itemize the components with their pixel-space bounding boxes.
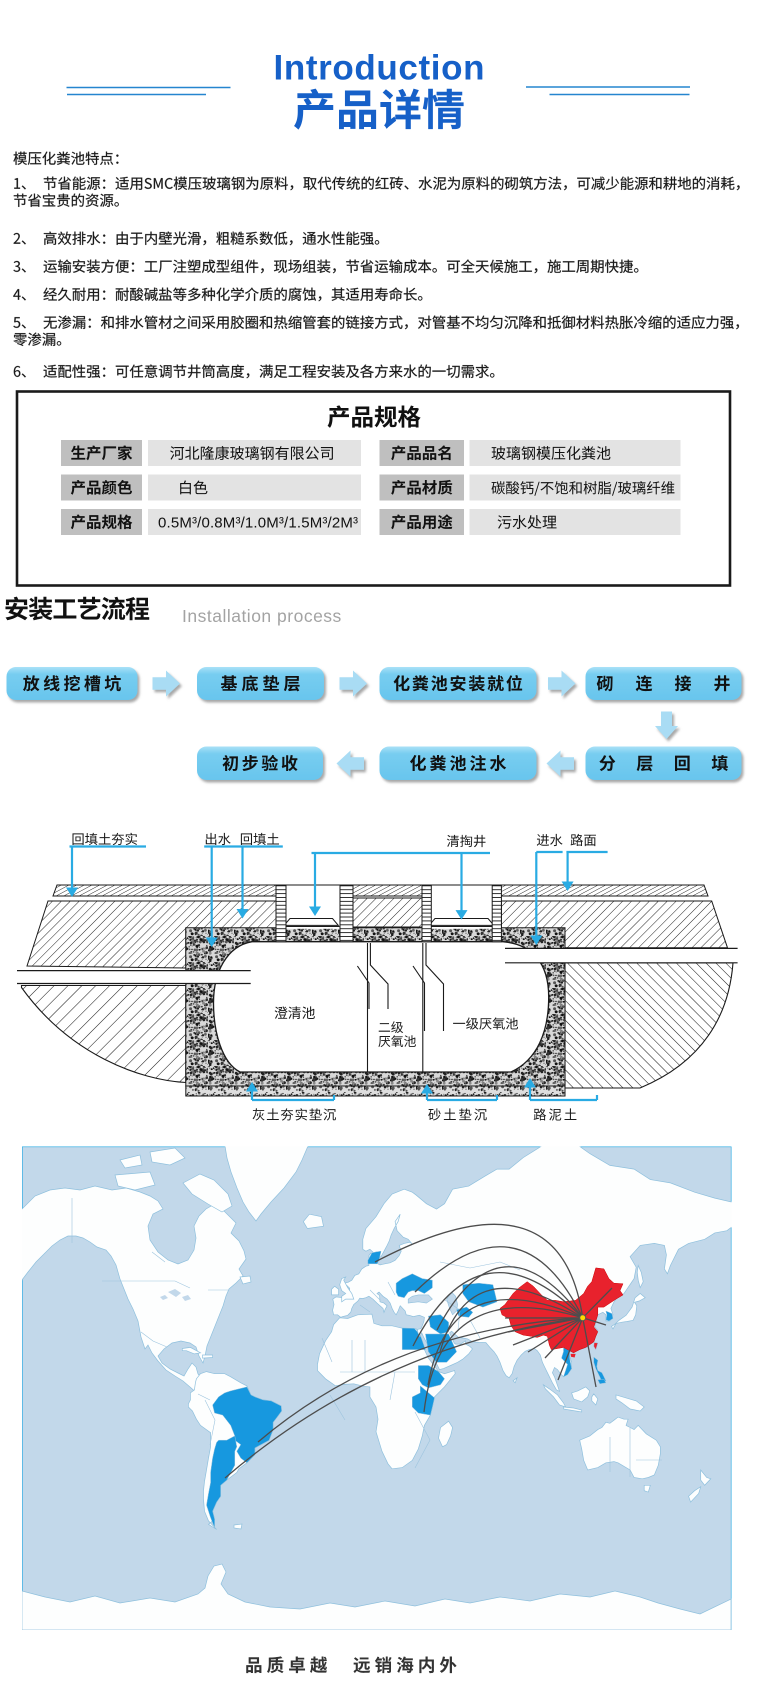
svg-text:0.5M³/0.8M³/1.0M³/1.5M³/2M³: 0.5M³/0.8M³/1.0M³/1.5M³/2M³ bbox=[158, 515, 358, 532]
svg-text:Installation process: Installation process bbox=[182, 606, 342, 626]
svg-text:Introduction: Introduction bbox=[274, 49, 485, 88]
